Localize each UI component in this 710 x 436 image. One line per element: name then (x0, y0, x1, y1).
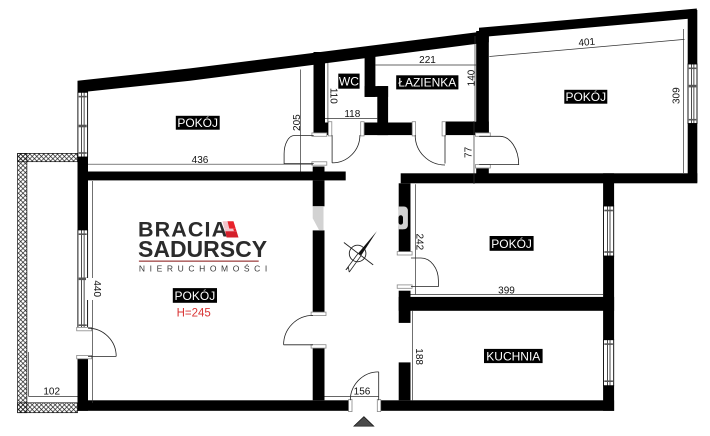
svg-text:POKÓJ: POKÓJ (565, 89, 606, 104)
svg-text:221: 221 (419, 55, 436, 66)
svg-text:ŁAZIENKA: ŁAZIENKA (398, 76, 456, 90)
svg-text:399: 399 (498, 286, 515, 297)
svg-text:WC: WC (339, 74, 359, 88)
svg-text:NIERUCHOMOŚCI: NIERUCHOMOŚCI (139, 262, 272, 273)
svg-text:SADURSCY: SADURSCY (138, 236, 267, 262)
svg-text:156: 156 (354, 387, 371, 398)
svg-text:POKÓJ: POKÓJ (175, 288, 216, 303)
svg-text:H=245: H=245 (177, 307, 211, 319)
svg-text:POKÓJ: POKÓJ (491, 236, 532, 251)
svg-text:188: 188 (413, 348, 424, 365)
svg-text:110: 110 (327, 88, 338, 104)
svg-text:440: 440 (91, 280, 102, 297)
svg-text:242: 242 (413, 233, 424, 250)
svg-text:KUCHNIA: KUCHNIA (486, 349, 540, 363)
svg-text:140: 140 (466, 69, 477, 86)
svg-text:POKÓJ: POKÓJ (177, 115, 218, 130)
svg-text:309: 309 (672, 87, 683, 104)
svg-text:401: 401 (578, 37, 596, 49)
svg-text:118: 118 (344, 109, 360, 120)
svg-text:102: 102 (43, 387, 60, 398)
svg-text:436: 436 (192, 155, 209, 166)
svg-text:205: 205 (292, 114, 303, 131)
svg-text:77: 77 (463, 146, 474, 158)
